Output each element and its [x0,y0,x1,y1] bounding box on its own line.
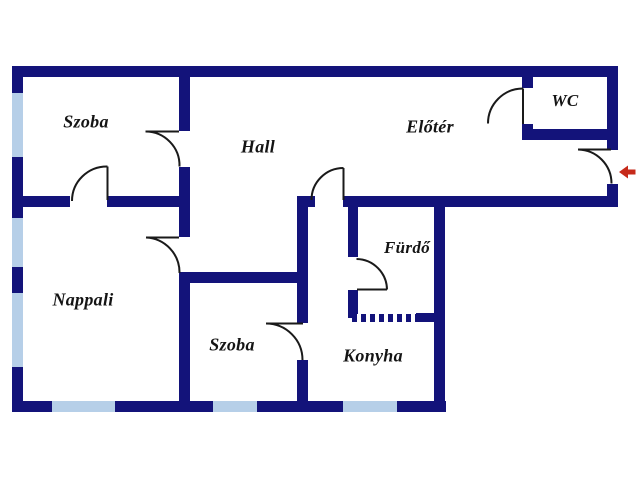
door-arc [312,168,344,200]
entrance-arrow-icon [619,166,636,179]
room-label-szoba-1: Szoba [63,112,109,133]
door-arc [266,324,303,361]
room-label-wc: WC [551,91,578,111]
room-label-konyha: Konyha [343,346,403,367]
doors-overlay [0,0,640,480]
room-label-szoba-2: Szoba [209,335,255,356]
door-arc [578,150,612,184]
door-arc [146,238,180,274]
door-arc [146,132,180,167]
door-arc [72,166,108,201]
room-label-nappali: Nappali [52,290,113,311]
door-arc [488,89,523,124]
door-arc [357,259,388,290]
floor-plan: Szoba Hall Előtér WC Nappali Fürdő Szoba… [0,0,640,480]
room-label-hall: Hall [241,137,275,158]
room-label-eloter: Előtér [406,117,454,138]
room-label-furdo: Fürdő [384,238,430,258]
